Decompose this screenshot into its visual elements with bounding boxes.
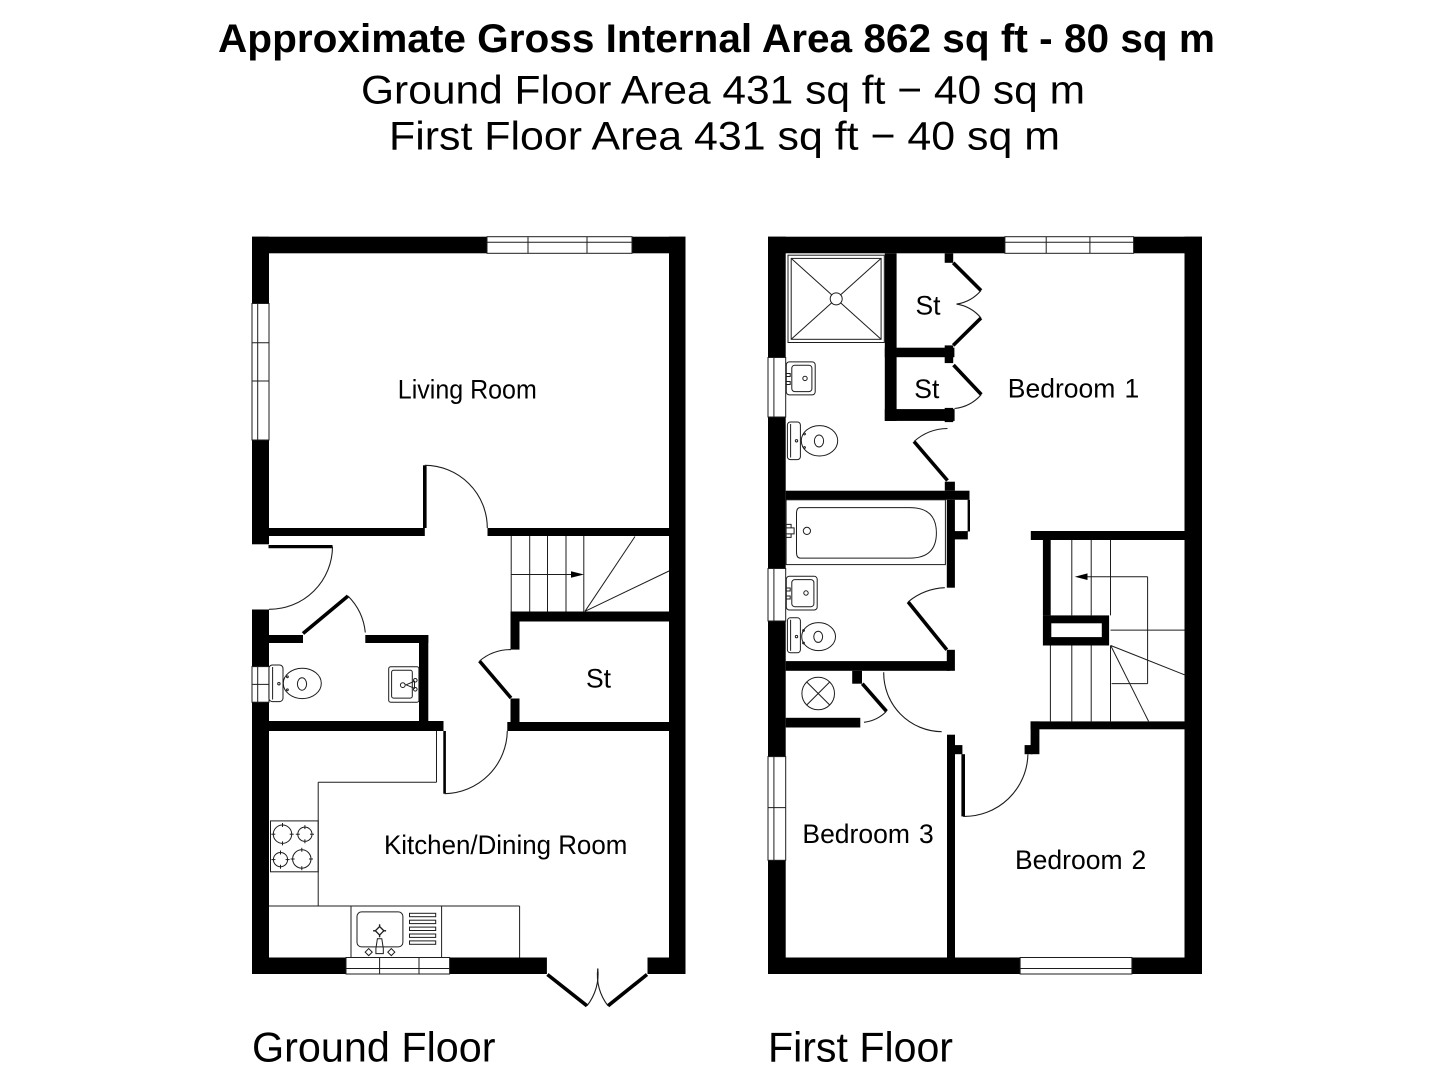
svg-text:Bedroom: Bedroom bbox=[1015, 845, 1123, 875]
svg-text:St: St bbox=[914, 374, 940, 404]
svg-text:Approximate Gross Internal Are: Approximate Gross Internal Area 862 sq f… bbox=[218, 17, 1215, 61]
svg-text:First Floor Area 431 sq ft − 4: First Floor Area 431 sq ft − 40 sq m bbox=[389, 114, 1060, 158]
svg-text:1: 1 bbox=[1125, 374, 1140, 404]
svg-text:St: St bbox=[916, 291, 942, 321]
svg-text:Living Room: Living Room bbox=[398, 375, 537, 405]
svg-text:First Floor: First Floor bbox=[768, 1024, 953, 1071]
svg-text:Ground Floor: Ground Floor bbox=[252, 1024, 496, 1071]
svg-text:2: 2 bbox=[1132, 845, 1147, 875]
svg-text:St: St bbox=[586, 664, 612, 694]
svg-text:Kitchen/Dining Room: Kitchen/Dining Room bbox=[384, 830, 627, 860]
svg-text:Ground Floor Area 431 sq ft −: Ground Floor Area 431 sq ft − 40 sq m bbox=[361, 68, 1085, 112]
svg-text:Bedroom: Bedroom bbox=[802, 819, 910, 849]
svg-text:3: 3 bbox=[919, 819, 934, 849]
svg-text:Bedroom: Bedroom bbox=[1008, 374, 1116, 404]
